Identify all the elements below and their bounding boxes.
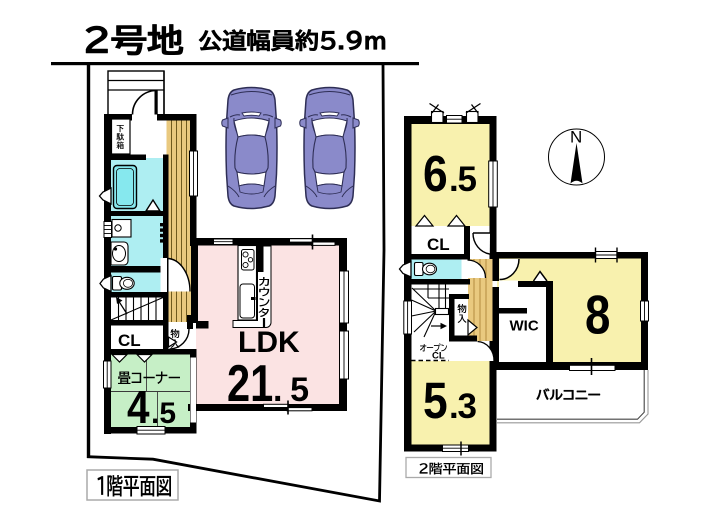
svg-text:.5: .5 [151,397,176,430]
svg-text:21: 21 [227,354,273,413]
svg-text:5: 5 [423,373,448,430]
svg-text:N: N [570,128,582,147]
svg-text:4: 4 [127,383,150,434]
svg-text:8: 8 [585,283,610,345]
svg-text:6: 6 [423,146,448,203]
svg-text:.5: .5 [273,371,309,409]
svg-text:CL: CL [427,235,450,254]
svg-text:CL: CL [118,331,141,350]
svg-text:.3: .3 [449,387,477,426]
svg-text:WIC: WIC [510,318,539,335]
svg-text:.5: .5 [449,160,477,199]
